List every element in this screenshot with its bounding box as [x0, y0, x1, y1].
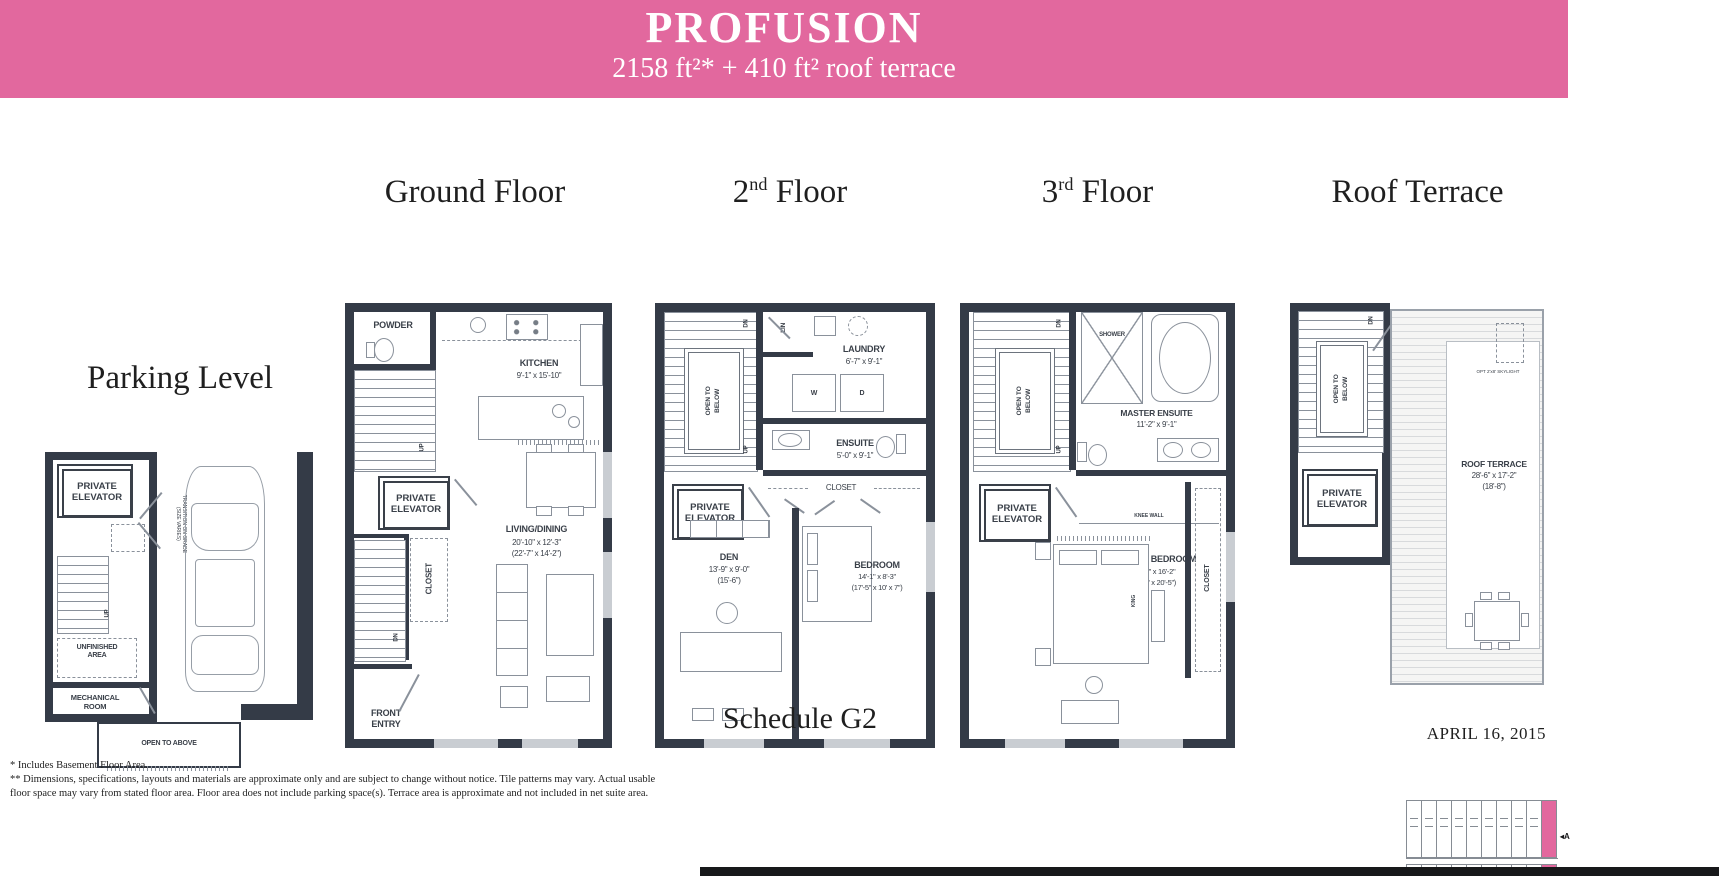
window	[704, 739, 764, 748]
closet-dash	[768, 488, 808, 489]
patio-chair	[1521, 613, 1529, 627]
page-edge-strip	[700, 867, 1719, 876]
coffee-table	[546, 574, 594, 656]
third-open-to-below: OPEN TO BELOW	[995, 348, 1055, 454]
second-open-to-below: OPEN TO BELOW	[684, 348, 744, 454]
title-third-floor: 3rd Floor	[960, 174, 1235, 210]
title-second-floor: 2nd Floor	[650, 174, 930, 210]
wall	[1076, 470, 1226, 476]
wall	[430, 312, 436, 364]
den-sofa	[690, 520, 770, 538]
ground-up-label: UP	[419, 439, 426, 457]
vanity-sink	[1163, 442, 1183, 458]
den-dims: 13'-9" x 9'-0"	[674, 565, 784, 574]
window	[603, 452, 612, 518]
second-dn-label: DN	[743, 315, 750, 333]
bifold-door	[860, 499, 881, 514]
door-leaf	[748, 487, 770, 517]
kitchen-dims: 9'-1" x 15'-10"	[484, 371, 594, 380]
third-private-elevator-label: PRIVATE ELEVATOR	[984, 489, 1050, 541]
mechanical-room-label: MECHANICAL ROOM	[55, 694, 135, 712]
keyplan-unit	[1481, 800, 1497, 858]
stove	[506, 314, 548, 340]
second-floor-word: Floor	[767, 174, 847, 210]
open-to-above-label: OPEN TO ABOVE	[107, 740, 231, 748]
vanity-sink	[1191, 442, 1211, 458]
laundry-basin	[848, 316, 868, 336]
window	[1226, 532, 1235, 602]
parking-stairs	[57, 556, 109, 634]
sofa	[496, 564, 528, 676]
car-roof	[195, 559, 255, 627]
pillow	[807, 570, 818, 602]
armchair	[500, 686, 528, 708]
wall	[1069, 312, 1076, 470]
plan-name-title: PROFUSION	[0, 4, 1568, 52]
dining-table	[526, 452, 596, 508]
roof-terrace-label: ROOF TERRACE	[1448, 459, 1540, 469]
pillow	[1101, 550, 1139, 565]
window	[926, 522, 935, 592]
third-private-elevator: PRIVATE ELEVATOR	[979, 484, 1051, 542]
king-label: KING	[1132, 587, 1138, 615]
second-open-to-below-label: OPEN TO BELOW	[705, 378, 723, 424]
roof-private-elevator: PRIVATE ELEVATOR	[1302, 469, 1378, 527]
pillow	[1059, 550, 1097, 565]
unfinished-area-label: UNFINISHED AREA	[59, 644, 135, 661]
door-leaf	[398, 674, 419, 712]
patio-chair	[1498, 642, 1510, 650]
bedroom-label: BEDROOM	[832, 560, 922, 571]
window	[1119, 739, 1183, 748]
ensuite-label: ENSUITE	[810, 438, 900, 449]
bedroom-dims2: (17'-5" x 10' x 7")	[828, 584, 926, 593]
ground-dn-label: DN	[393, 629, 400, 647]
toilet	[374, 338, 394, 362]
plan-parking-level: PRIVATE ELEVATOR UP UNFINISHED AREA MECH…	[45, 452, 318, 772]
desk	[680, 632, 782, 672]
third-floor-word: Floor	[1073, 174, 1153, 210]
plan-ground-floor: POWDER UP PRIVATE ELEVATOR CLOSET DN FRO…	[345, 303, 612, 748]
keyplan-unit	[1466, 800, 1482, 858]
keyplan-ground-line	[1406, 858, 1558, 859]
roof-open-to-below: OPEN TO BELOW	[1316, 341, 1368, 437]
third-up-label: UP	[1056, 441, 1063, 459]
footnote-3: floor space may vary from stated floor a…	[10, 788, 648, 801]
third-open-to-below-label: OPEN TO BELOW	[1016, 378, 1034, 424]
bifold-door	[814, 500, 835, 515]
rug-hatch	[518, 440, 602, 445]
schedule-label: Schedule G2	[600, 702, 1000, 735]
ensuite-sink	[778, 433, 802, 447]
bedroom-dims: 14'-1" x 8'-3"	[834, 573, 920, 582]
window	[603, 552, 612, 618]
wall	[763, 352, 813, 357]
wall	[53, 682, 149, 688]
dryer-label: D	[841, 375, 883, 411]
rug-hatch	[1057, 536, 1153, 541]
vanity-chair	[1085, 676, 1103, 694]
window	[824, 739, 890, 748]
unit-pointer: ◂A	[1560, 832, 1570, 841]
second-floor-ordinal: nd	[749, 174, 767, 194]
keyplan-unit-highlighted	[1541, 800, 1557, 858]
loveseat	[546, 676, 590, 702]
laundry-sink	[814, 316, 836, 336]
window	[434, 739, 498, 748]
keyplan: ◂A	[1406, 800, 1586, 876]
keyplan-unit	[1406, 800, 1422, 858]
laundry-dims: 6'-7" x 9'-1"	[814, 357, 914, 366]
washer-label: W	[793, 375, 835, 411]
washer: W	[792, 374, 836, 412]
ground-private-elevator: PRIVATE ELEVATOR	[378, 476, 450, 530]
living-dining-dims2: (22'-7" x 14'-2")	[484, 549, 589, 558]
optional-skylight-outline	[1496, 323, 1524, 363]
parking-private-elevator: PRIVATE ELEVATOR	[57, 464, 133, 518]
powder-label: POWDER	[356, 320, 430, 331]
title-ground-floor: Ground Floor	[340, 174, 610, 210]
nightstand	[1035, 542, 1051, 560]
second-floor-number: 2	[733, 174, 750, 210]
patio-chair	[1480, 592, 1492, 600]
second-up-label: UP	[743, 441, 750, 459]
plan-roof-terrace: OPEN TO BELOW DN PRIVATE ELEVATOR OPT 2'…	[1290, 303, 1550, 700]
roof-dn-label: DN	[1368, 313, 1375, 329]
wall	[763, 470, 926, 476]
area-subtitle: 2158 ft²* + 410 ft² roof terrace	[0, 54, 1568, 85]
roof-terrace-dims: 28'-6" x 17'-2"	[1448, 471, 1540, 480]
third-floor-ordinal: rd	[1058, 174, 1073, 194]
dining-chair	[568, 506, 584, 516]
patio-table	[1474, 601, 1520, 641]
wall	[354, 664, 412, 669]
nightstand	[1035, 648, 1051, 666]
plan-third-floor: OPEN TO BELOW DN UP SHOWER MASTER ENSUIT…	[960, 303, 1235, 748]
keyplan-unit	[1451, 800, 1467, 858]
door-leaf	[1055, 487, 1077, 517]
master-ensuite-label: MASTER ENSUITE	[1087, 408, 1226, 418]
kitchen-label: KITCHEN	[484, 358, 594, 369]
parking-private-elevator-label: PRIVATE ELEVATOR	[62, 469, 132, 517]
car-rear-window	[191, 635, 259, 675]
roof-stair-block-walls: OPEN TO BELOW DN PRIVATE ELEVATOR	[1290, 303, 1390, 565]
dryer: D	[840, 374, 884, 412]
parking-vestibule	[111, 524, 145, 552]
second-closet-label: CLOSET	[810, 483, 872, 492]
patio-chair	[1465, 613, 1473, 627]
wall	[1185, 482, 1191, 678]
parking-unit-walls: PRIVATE ELEVATOR UP UNFINISHED AREA MECH…	[45, 452, 157, 722]
living-dining-label: LIVING/DINING	[474, 524, 599, 535]
island-sink	[552, 404, 566, 418]
window	[1005, 739, 1065, 748]
toilet-tank	[366, 342, 375, 358]
third-dn-label: DN	[1056, 315, 1063, 333]
counter-line	[442, 340, 592, 341]
front-entry-label: FRONT ENTRY	[358, 708, 414, 729]
keyplan-unit	[1436, 800, 1452, 858]
wall	[763, 418, 926, 424]
date-label: APRIL 16, 2015	[1330, 725, 1546, 744]
knee-wall-label: KNEE WALL	[1119, 514, 1179, 520]
fridge	[580, 324, 603, 386]
wall	[756, 312, 763, 470]
keyplan-unit	[1511, 800, 1527, 858]
bench	[1151, 590, 1165, 642]
floorplan-page: PROFUSION 2158 ft²* + 410 ft² roof terra…	[0, 0, 1719, 876]
title-roof-terrace: Roof Terrace	[1285, 174, 1550, 210]
kitchen-sink	[470, 317, 486, 333]
ensuite-dims: 5'-0" x 9'-1"	[810, 451, 900, 460]
keyplan-unit	[1526, 800, 1542, 858]
skylight-label: OPT 2'x8' SKYLIGHT	[1456, 369, 1540, 374]
island-sink	[568, 416, 580, 428]
wall	[297, 452, 313, 657]
roof-private-elevator-label: PRIVATE ELEVATOR	[1307, 474, 1377, 526]
car-illustration	[185, 466, 265, 692]
ground-private-elevator-label: PRIVATE ELEVATOR	[383, 481, 449, 529]
desk-chair	[716, 602, 738, 624]
pillow	[807, 533, 818, 565]
keyplan-unit	[1496, 800, 1512, 858]
footnote-1: * Includes Basement Floor Area.	[10, 760, 148, 773]
window	[522, 739, 578, 748]
living-dining-dims: 20'-10" x 12'-3"	[484, 538, 589, 547]
footnote-2: ** Dimensions, specifications, layouts a…	[10, 774, 655, 787]
den-label: DEN	[674, 552, 784, 563]
ground-closet-label: CLOSET	[424, 553, 433, 605]
shower	[1081, 312, 1143, 404]
dining-chair	[536, 506, 552, 516]
closet-dash	[874, 488, 920, 489]
toilet-tank	[1077, 442, 1087, 462]
patio-chair	[1498, 592, 1510, 600]
roof-open-to-below-label: OPEN TO BELOW	[1333, 366, 1351, 412]
wall	[297, 642, 313, 720]
den-dims2: (15'-6")	[674, 576, 784, 585]
patio-chair	[1480, 642, 1492, 650]
laundry-label: LAUNDRY	[814, 344, 914, 355]
dresser	[1061, 700, 1119, 724]
ground-stairs-up	[354, 370, 436, 472]
unit-pointer-label: A	[1564, 832, 1570, 841]
third-floor-number: 3	[1042, 174, 1059, 210]
plan-second-floor: OPEN TO BELOW DN UP LIN LAUNDRY 6'-7" x …	[655, 303, 935, 748]
master-ensuite-dims: 11'-2" x 9'-1"	[1087, 420, 1226, 429]
third-closet-label: CLOSET	[1204, 553, 1212, 603]
wall	[354, 534, 406, 538]
terrace-deck: OPT 2'x8' SKYLIGHT ROOF TERRACE 28'-6" x…	[1390, 309, 1544, 685]
door-leaf	[454, 479, 477, 506]
keyplan-unit	[1421, 800, 1437, 858]
parking-up-label: UP	[104, 605, 111, 623]
header-banner: PROFUSION 2158 ft²* + 410 ft² roof terra…	[0, 0, 1568, 98]
door-leaf	[139, 687, 155, 714]
bathtub-basin	[1159, 322, 1211, 394]
roof-terrace-dims2: (18'-8")	[1448, 482, 1540, 491]
car-windshield	[191, 503, 259, 551]
toilet	[1088, 444, 1107, 466]
shower-label: SHOWER	[1081, 332, 1143, 339]
title-parking-level: Parking Level	[40, 360, 320, 396]
